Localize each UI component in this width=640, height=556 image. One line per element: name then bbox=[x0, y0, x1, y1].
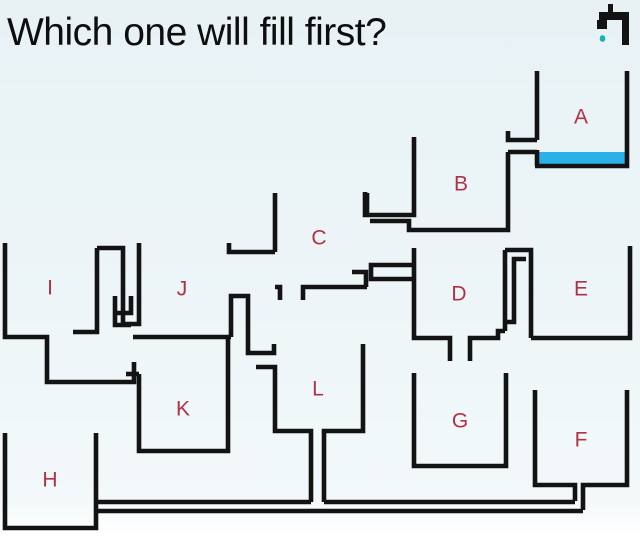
tank-b-outlet-floor bbox=[370, 221, 412, 230]
tank-label-g: G bbox=[452, 410, 468, 433]
tank-f-left-wall-floor-and-riser-left bbox=[535, 390, 575, 501]
tank-f-riser-right-floor-and-right-wall bbox=[583, 390, 627, 510]
tank-label-c: C bbox=[311, 227, 326, 250]
tank-label-a: A bbox=[574, 106, 588, 129]
tank-label-l: L bbox=[312, 378, 324, 401]
tank-label-f: F bbox=[575, 429, 588, 452]
tank-d-floor-right-and-slot-stub bbox=[470, 331, 505, 361]
tank-label-j: J bbox=[177, 278, 188, 301]
pipes-diagram: ABCDEFGHIJKL bbox=[0, 0, 640, 556]
water-drop-icon bbox=[600, 35, 606, 42]
faucet-icon bbox=[597, 4, 629, 45]
tank-l-lip-left-wall-floor-and-drain-left bbox=[256, 367, 311, 502]
tank-label-d: D bbox=[451, 283, 466, 306]
serpentine-inner-wall bbox=[505, 259, 526, 322]
tank-label-h: H bbox=[42, 469, 57, 492]
tank-l-drain-right-floor-and-right-wall bbox=[324, 344, 363, 502]
pipe-c-to-d bbox=[371, 265, 414, 279]
tank-label-b: B bbox=[454, 173, 468, 196]
tank-label-k: K bbox=[176, 398, 190, 421]
tank-c-floor-left-and-drain-stub bbox=[275, 287, 280, 300]
faucet-part bbox=[597, 20, 607, 29]
tank-d-left-wall-floor-and-slot-stub bbox=[414, 248, 450, 361]
pipe-a-to-b-ceiling bbox=[508, 131, 537, 140]
puzzle-canvas: Which one will fill first? ABCDEFGHIJKL bbox=[0, 0, 640, 556]
faucet-part bbox=[608, 4, 613, 14]
chimney-left-wall-and-ledge bbox=[73, 248, 97, 332]
tank-c-floor-right-and-drain-stub bbox=[303, 287, 367, 300]
tank-label-e: E bbox=[574, 278, 588, 301]
tank-k-walls bbox=[139, 337, 228, 451]
serpentine-outer-wall-and-tank-e-left-wall bbox=[505, 250, 531, 338]
tank-j-right-wall-and-tube bbox=[231, 296, 274, 353]
tank-b-left-wall-and-outlet-ceiling bbox=[365, 137, 414, 215]
faucet-part bbox=[622, 12, 629, 45]
tank-c-spout-to-j bbox=[229, 243, 275, 252]
tank-a-water bbox=[539, 152, 625, 165]
tank-label-i: I bbox=[47, 277, 53, 300]
